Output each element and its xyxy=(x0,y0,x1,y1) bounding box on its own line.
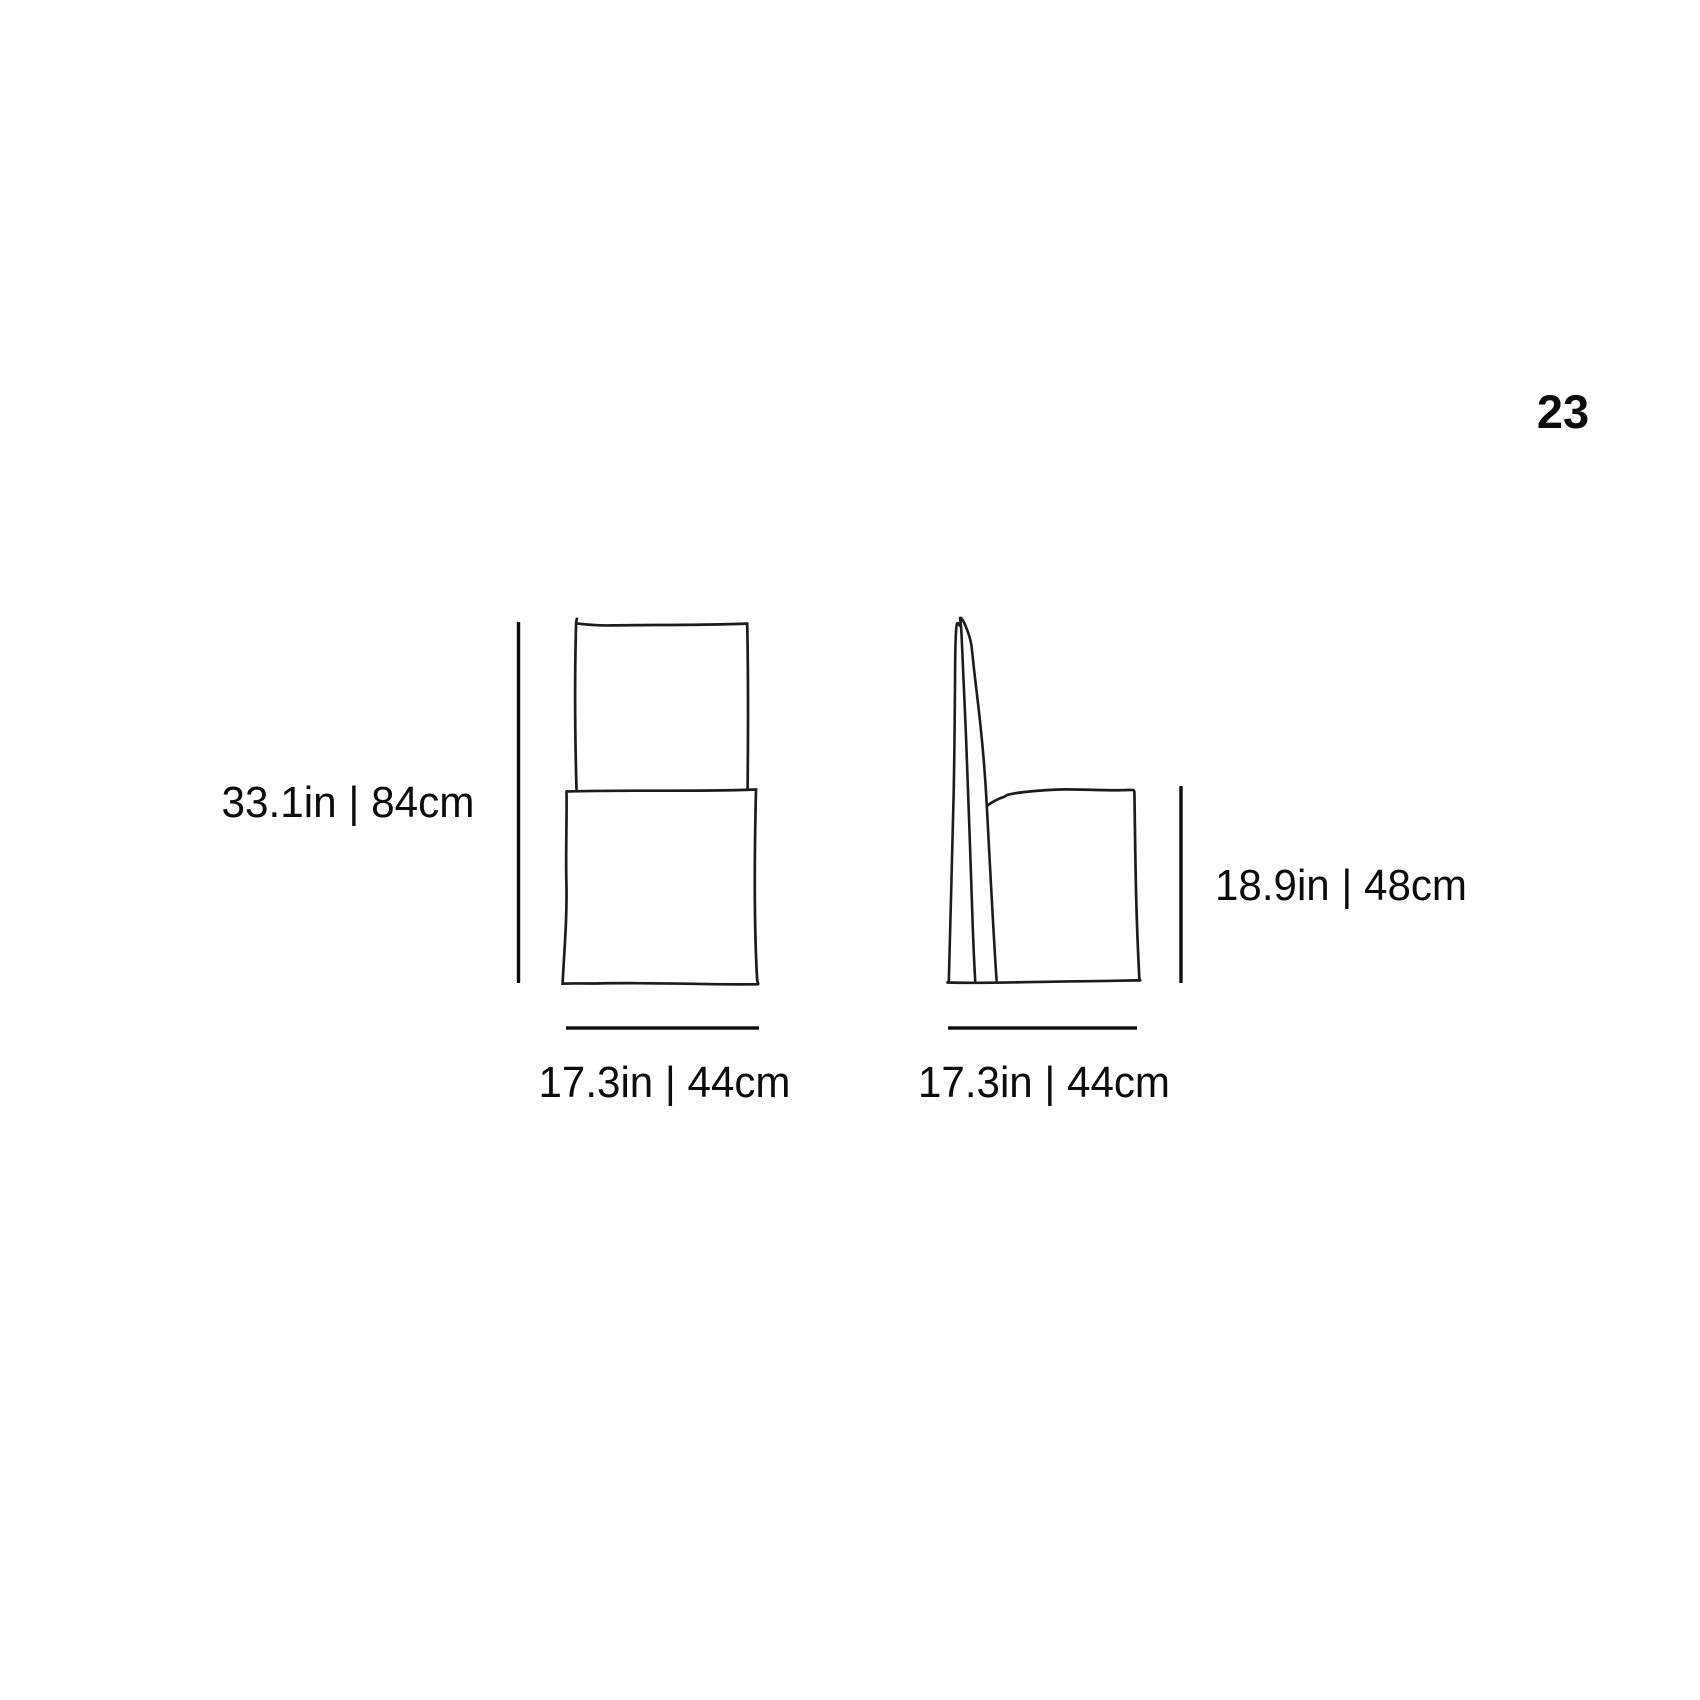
svg-text:33.1in | 84cm: 33.1in | 84cm xyxy=(222,779,475,827)
svg-text:18.9in | 48cm: 18.9in | 48cm xyxy=(1215,862,1467,910)
svg-text:23: 23 xyxy=(1537,385,1589,438)
svg-text:17.3in | 44cm: 17.3in | 44cm xyxy=(918,1059,1170,1107)
svg-text:17.3in | 44cm: 17.3in | 44cm xyxy=(539,1059,791,1107)
